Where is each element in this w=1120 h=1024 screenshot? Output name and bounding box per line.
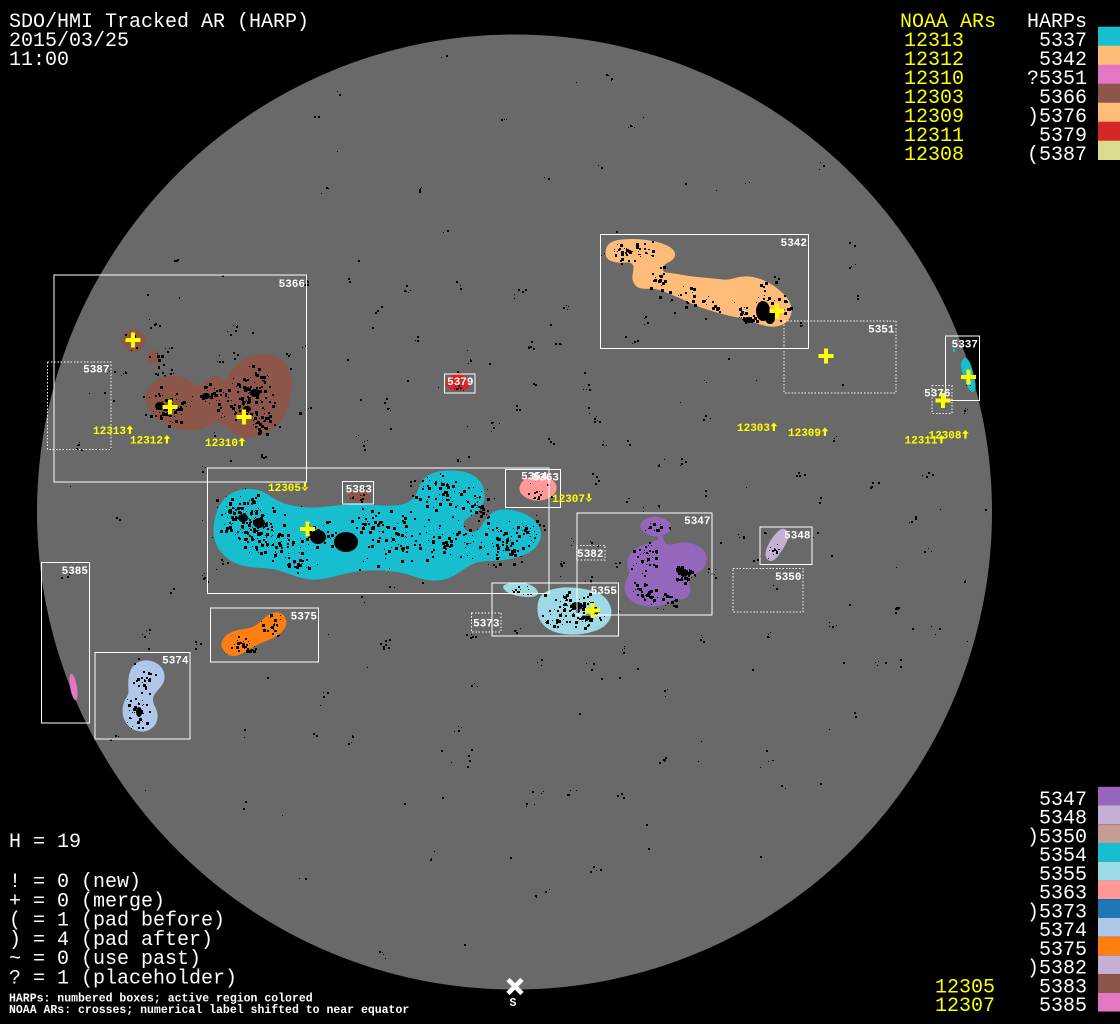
svg-text:? = 1 (placeholder): ? = 1 (placeholder)	[9, 968, 237, 991]
svg-text:5351: 5351	[868, 325, 895, 337]
svg-text:5374: 5374	[162, 656, 189, 668]
svg-text:S: S	[510, 997, 517, 1010]
svg-text:5363: 5363	[533, 473, 560, 485]
svg-text:12312: 12312	[130, 436, 163, 448]
svg-text:5366: 5366	[279, 279, 305, 291]
svg-text:H = 19: H = 19	[9, 831, 81, 854]
svg-text:5382: 5382	[577, 549, 603, 561]
svg-text:12307: 12307	[935, 995, 995, 1018]
svg-text:5350: 5350	[775, 572, 801, 584]
svg-text:12311: 12311	[905, 436, 938, 448]
svg-text:12308: 12308	[904, 144, 964, 167]
svg-text:5348: 5348	[784, 531, 811, 543]
svg-text:NOAA ARs: crosses; numerical l: NOAA ARs: crosses; numerical label shift…	[9, 1004, 409, 1017]
svg-text:12305: 12305	[268, 483, 301, 495]
svg-text:5379: 5379	[447, 377, 473, 389]
svg-text:5383: 5383	[346, 485, 373, 497]
svg-text:12313: 12313	[93, 426, 126, 438]
svg-text:12309: 12309	[788, 428, 821, 440]
svg-text:12310: 12310	[205, 438, 238, 450]
svg-text:5342: 5342	[781, 238, 807, 250]
svg-text:(5387: (5387	[1027, 144, 1087, 167]
svg-text:12303: 12303	[737, 423, 770, 435]
svg-text:5337: 5337	[952, 340, 978, 352]
svg-text:5385: 5385	[1039, 995, 1087, 1018]
svg-text:5347: 5347	[684, 516, 710, 528]
svg-text:11:00: 11:00	[9, 49, 69, 72]
svg-text:12307: 12307	[552, 494, 585, 506]
svg-text:5355: 5355	[591, 586, 618, 598]
svg-text:5385: 5385	[62, 566, 89, 578]
svg-text:5387: 5387	[83, 365, 109, 377]
svg-text:5373: 5373	[473, 619, 500, 631]
svg-text:5375: 5375	[291, 612, 318, 624]
